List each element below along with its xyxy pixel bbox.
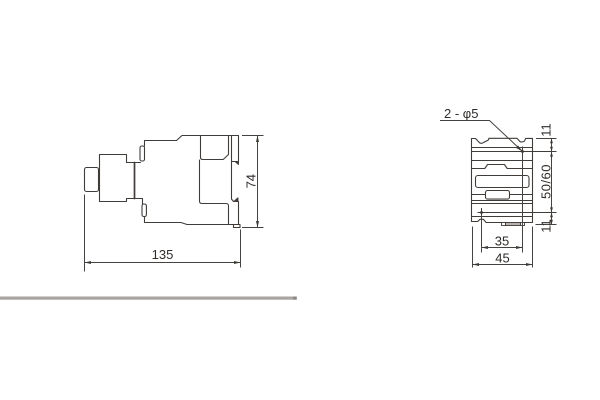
svg-text:50/60: 50/60 [539, 164, 554, 199]
svg-text:2 - φ5: 2 - φ5 [444, 106, 478, 121]
svg-text:45: 45 [495, 250, 509, 265]
svg-text:74: 74 [243, 174, 258, 188]
svg-text:11: 11 [539, 219, 554, 233]
svg-text:135: 135 [152, 247, 174, 262]
svg-text:35: 35 [495, 233, 509, 248]
svg-text:11: 11 [539, 123, 554, 137]
